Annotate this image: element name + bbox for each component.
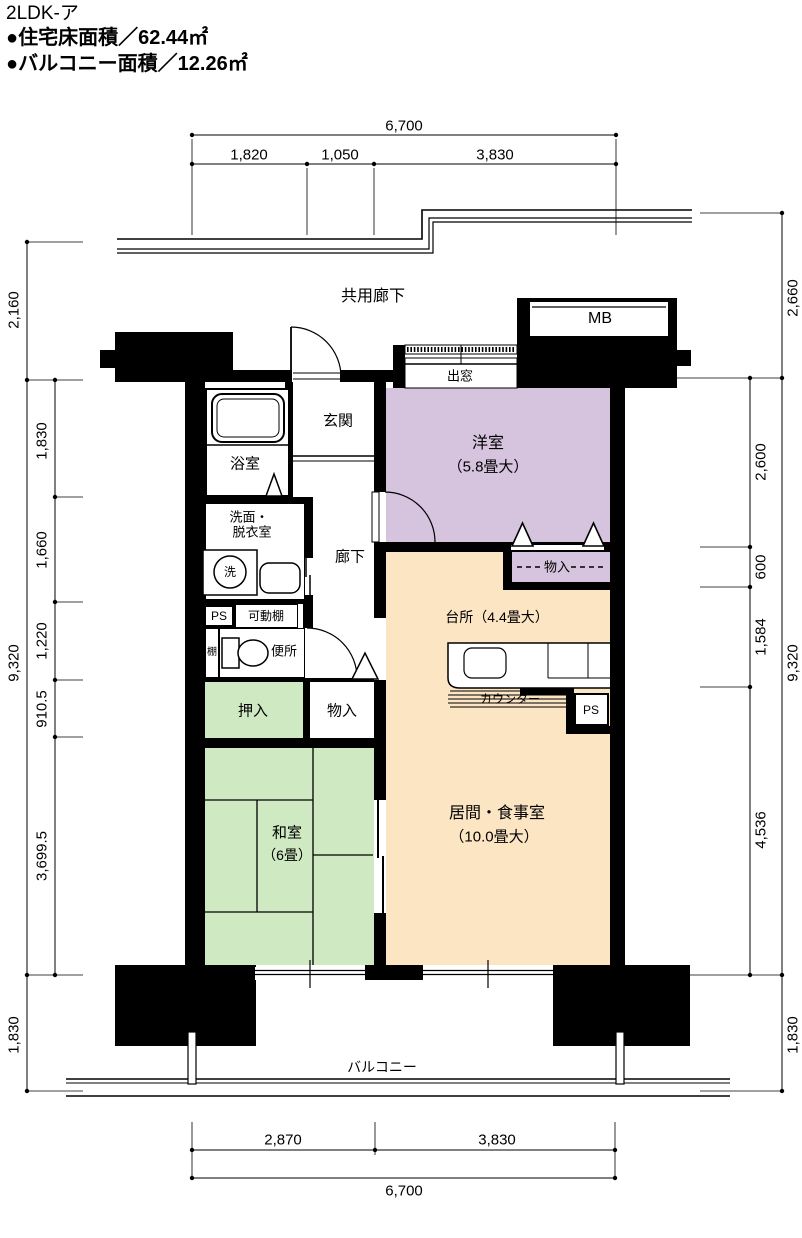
dim-right-outer3: 1,830 [786, 1016, 801, 1054]
dim-top-seg3: 3,830 [476, 148, 514, 163]
dim-left-outer1: 2,160 [7, 291, 22, 329]
western-room-label: 洋室 [472, 436, 504, 452]
dim-right-inner2: 600 [754, 554, 769, 579]
washroom-label-line1: 洗面・ [229, 511, 268, 524]
bay-window-label: 出窓 [447, 370, 473, 383]
dim-left-inner4: 910.5 [35, 690, 50, 728]
kitchen-label: 台所（4.4畳大） [445, 610, 548, 624]
dim-top-total: 6,700 [385, 119, 423, 134]
dim-left-inner1: 1,830 [35, 422, 50, 460]
floor-plan-canvas: 2LDK-ア ●住宅床面積／62.44㎡ ●バルコニー面積／12.26㎡ 共用廊… [0, 0, 802, 1238]
dim-right-inner1: 2,600 [754, 443, 769, 481]
ps-label: PS [211, 610, 227, 622]
dim-right-inner3: 1,584 [754, 618, 769, 656]
movable-shelf-label: 可動棚 [248, 610, 284, 622]
dim-top-seg2: 1,050 [321, 148, 359, 163]
dim-top-seg1: 1,820 [230, 148, 268, 163]
monoire-label: 物入 [327, 704, 357, 719]
dim-right-outer1: 2,660 [786, 279, 801, 317]
washroom-label-line2: 脱衣室 [232, 526, 271, 539]
ps2-label: PS [583, 704, 599, 716]
hallway-label: 廊下 [335, 550, 365, 565]
bath-label: 浴室 [230, 457, 260, 472]
entrance-label: 玄関 [323, 414, 353, 429]
dim-bottom-seg2: 3,830 [478, 1133, 516, 1148]
living-dining-size-label: （10.0畳大） [449, 830, 538, 845]
balcony-area-text: ●バルコニー面積／12.26㎡ [6, 53, 248, 76]
dim-left-outer3: 1,830 [7, 1016, 22, 1054]
balcony-label: バルコニー [347, 1060, 417, 1074]
toilet-label: 便所 [271, 645, 297, 658]
dim-right-outer2: 9,320 [786, 644, 801, 682]
meter-box-label: MB [588, 311, 612, 327]
dim-bottom-total: 6,700 [385, 1184, 423, 1199]
western-room-size-label: （5.8畳大） [448, 460, 529, 475]
monoire2-label: 物入 [544, 561, 570, 574]
plan-title: 2LDK-ア [6, 3, 79, 25]
linework-layer [0, 0, 802, 1238]
counter-label: カウンター [480, 693, 540, 705]
living-dining-label: 居間・食事室 [449, 806, 545, 822]
japanese-room-size-label: （6畳） [262, 848, 312, 862]
japanese-room-label: 和室 [272, 826, 302, 841]
dim-left-inner5: 3,699.5 [35, 831, 50, 881]
dim-right-inner4: 4,536 [754, 811, 769, 849]
dim-left-inner2: 1,660 [35, 531, 50, 569]
washer-label: 洗 [224, 566, 236, 578]
floor-area-text: ●住宅床面積／62.44㎡ [6, 27, 208, 50]
oshiire-label: 押入 [238, 704, 268, 719]
dim-left-inner3: 1,220 [35, 622, 50, 660]
dim-bottom-seg1: 2,870 [264, 1133, 302, 1148]
common-corridor-label: 共用廊下 [341, 289, 405, 305]
dim-left-outer2: 9,320 [7, 644, 22, 682]
shelf-label: 棚 [207, 648, 217, 658]
